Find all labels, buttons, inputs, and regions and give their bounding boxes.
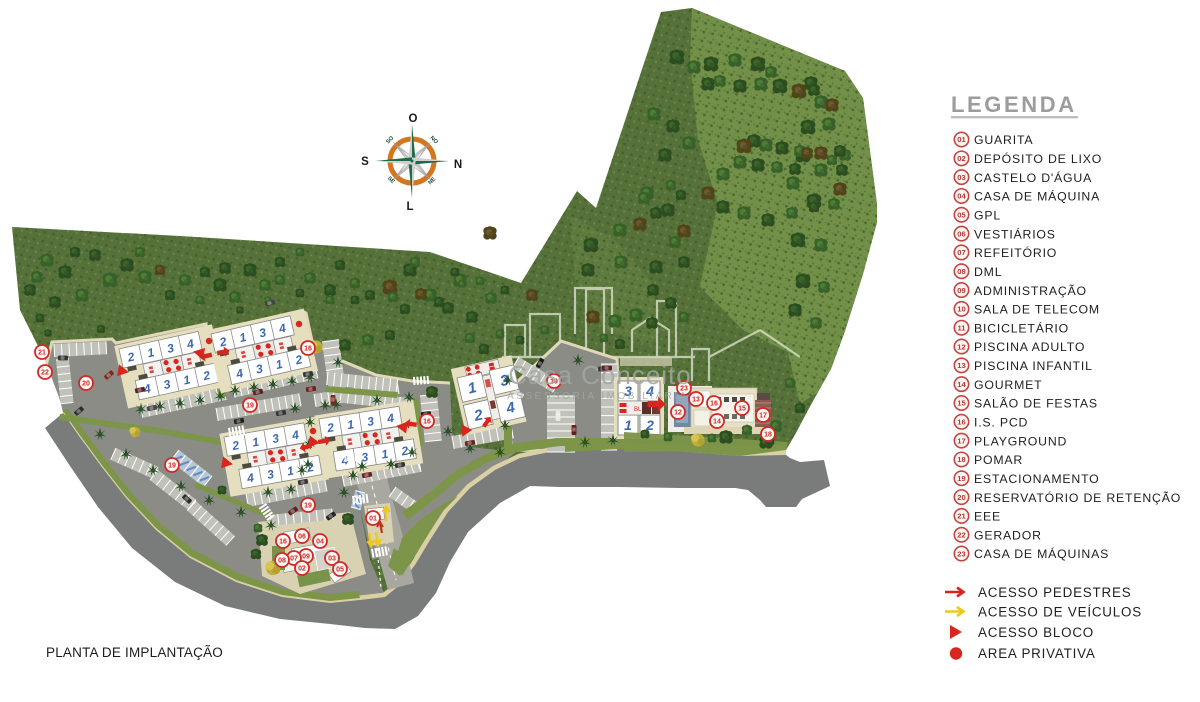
- svg-text:16: 16: [423, 419, 431, 426]
- svg-text:23: 23: [957, 549, 965, 558]
- svg-text:07: 07: [957, 248, 965, 257]
- svg-text:ACESSO BLOCO: ACESSO BLOCO: [978, 625, 1094, 640]
- svg-text:14: 14: [957, 380, 966, 389]
- svg-text:N: N: [454, 159, 462, 171]
- svg-text:L: L: [406, 201, 413, 213]
- svg-text:21: 21: [957, 512, 966, 521]
- svg-text:ASSESSORIA IMOBILIÁRIA: ASSESSORIA IMOBILIÁRIA: [507, 389, 689, 402]
- svg-text:06: 06: [957, 229, 965, 238]
- svg-text:20: 20: [82, 381, 90, 388]
- svg-text:08: 08: [957, 267, 965, 276]
- svg-text:12: 12: [957, 342, 965, 351]
- svg-text:22: 22: [41, 370, 49, 377]
- svg-text:15: 15: [738, 406, 746, 413]
- svg-text:05: 05: [336, 567, 344, 574]
- svg-text:01: 01: [957, 135, 966, 144]
- svg-text:SALÃO DE FESTAS: SALÃO DE FESTAS: [974, 397, 1098, 411]
- svg-text:05: 05: [957, 211, 966, 220]
- svg-text:BL: BL: [634, 407, 642, 413]
- svg-text:POMAR: POMAR: [974, 453, 1023, 467]
- svg-text:GPL: GPL: [974, 208, 1001, 222]
- svg-text:DML: DML: [974, 265, 1002, 279]
- svg-text:22: 22: [957, 530, 965, 539]
- svg-text:17: 17: [759, 413, 767, 420]
- svg-text:12: 12: [674, 410, 682, 417]
- svg-text:06: 06: [298, 534, 306, 541]
- svg-text:ACESSO PEDESTRES: ACESSO PEDESTRES: [978, 585, 1131, 600]
- svg-text:16: 16: [957, 418, 965, 427]
- svg-text:LEGENDA: LEGENDA: [951, 92, 1077, 117]
- svg-text:19: 19: [246, 403, 254, 410]
- svg-text:I.S. PCD: I.S. PCD: [974, 416, 1028, 430]
- svg-text:GOURMET: GOURMET: [974, 378, 1042, 392]
- svg-text:04: 04: [316, 539, 324, 546]
- svg-text:AREA PRIVATIVA: AREA PRIVATIVA: [978, 646, 1096, 661]
- svg-text:16: 16: [304, 346, 312, 353]
- svg-text:04: 04: [957, 192, 966, 201]
- svg-text:CASTELO D'ÁGUA: CASTELO D'ÁGUA: [974, 170, 1092, 185]
- svg-text:03: 03: [957, 173, 965, 182]
- svg-text:PLANTA DE IMPLANTAÇÃO: PLANTA DE IMPLANTAÇÃO: [46, 645, 223, 660]
- svg-text:16: 16: [279, 539, 287, 546]
- svg-text:REFEITÓRIO: REFEITÓRIO: [974, 245, 1057, 260]
- svg-text:Casa Conceito: Casa Conceito: [508, 360, 692, 390]
- svg-text:ADMINISTRAÇÃO: ADMINISTRAÇÃO: [974, 284, 1087, 298]
- svg-text:15: 15: [957, 399, 966, 408]
- svg-text:GERADOR: GERADOR: [974, 528, 1042, 542]
- svg-text:13: 13: [957, 361, 965, 370]
- svg-text:14: 14: [713, 419, 721, 426]
- svg-text:17: 17: [957, 436, 965, 445]
- svg-text:09: 09: [957, 286, 965, 295]
- svg-text:S: S: [361, 156, 369, 168]
- svg-text:1: 1: [624, 417, 632, 433]
- svg-text:EEE: EEE: [974, 510, 1001, 524]
- svg-text:21: 21: [38, 350, 46, 357]
- svg-text:SALA DE TELECOM: SALA DE TELECOM: [974, 303, 1100, 317]
- svg-text:09: 09: [302, 554, 310, 561]
- svg-text:11: 11: [957, 323, 966, 332]
- svg-text:18: 18: [764, 432, 772, 439]
- svg-text:02: 02: [298, 566, 306, 573]
- svg-text:ACESSO DE VEÍCULOS: ACESSO DE VEÍCULOS: [978, 605, 1142, 620]
- svg-text:19: 19: [304, 503, 312, 510]
- svg-text:RESERVATÓRIO DE RETENÇÃO: RESERVATÓRIO DE RETENÇÃO: [974, 490, 1181, 505]
- svg-text:ESTACIONAMENTO: ESTACIONAMENTO: [974, 472, 1100, 486]
- svg-text:DEPÓSITO DE LIXO: DEPÓSITO DE LIXO: [974, 151, 1102, 166]
- svg-text:GUARITA: GUARITA: [974, 133, 1033, 147]
- svg-text:07: 07: [290, 556, 298, 563]
- svg-text:16: 16: [710, 401, 718, 408]
- svg-text:O: O: [409, 113, 418, 125]
- svg-text:PISCINA ADULTO: PISCINA ADULTO: [974, 340, 1085, 354]
- svg-text:13: 13: [692, 397, 700, 404]
- svg-text:20: 20: [957, 493, 965, 502]
- svg-text:PLAYGROUND: PLAYGROUND: [974, 434, 1067, 448]
- svg-text:CASA DE MÁQUINAS: CASA DE MÁQUINAS: [974, 546, 1109, 561]
- svg-text:10: 10: [957, 305, 965, 314]
- svg-text:PISCINA INFANTIL: PISCINA INFANTIL: [974, 359, 1093, 373]
- svg-text:01: 01: [369, 516, 377, 523]
- svg-text:02: 02: [957, 154, 965, 163]
- svg-text:19: 19: [168, 463, 176, 470]
- svg-text:03: 03: [328, 556, 336, 563]
- svg-text:BICICLETÁRIO: BICICLETÁRIO: [974, 320, 1069, 335]
- svg-text:VESTIÁRIOS: VESTIÁRIOS: [974, 226, 1056, 241]
- svg-text:08: 08: [278, 558, 286, 565]
- svg-text:18: 18: [957, 455, 965, 464]
- svg-text:19: 19: [957, 474, 965, 483]
- svg-text:CASA DE MÁQUINA: CASA DE MÁQUINA: [974, 189, 1100, 204]
